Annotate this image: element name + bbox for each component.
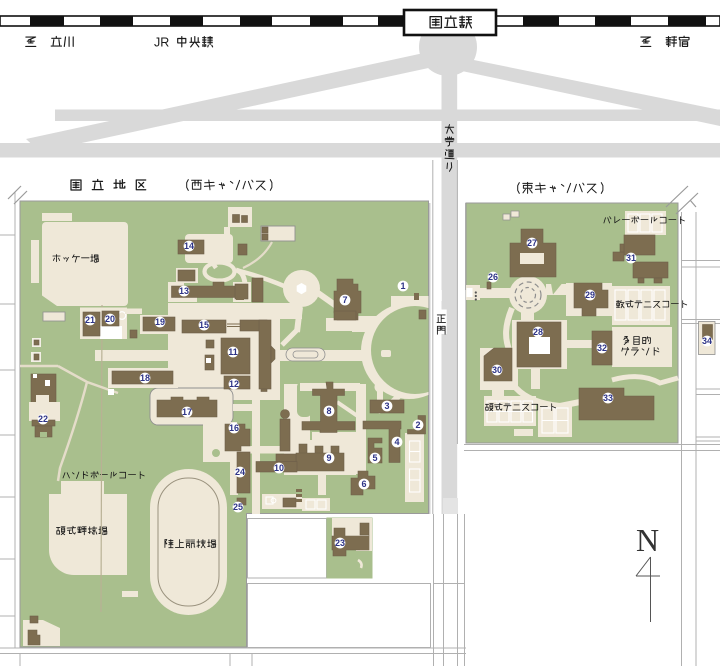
svg-text:17: 17 xyxy=(182,407,192,417)
svg-text:4: 4 xyxy=(394,437,399,447)
svg-text:1: 1 xyxy=(400,281,405,291)
svg-text:26: 26 xyxy=(488,272,498,282)
svg-text:16: 16 xyxy=(229,423,239,433)
svg-text:29: 29 xyxy=(585,290,595,300)
svg-text:31: 31 xyxy=(626,253,636,263)
svg-text:2: 2 xyxy=(415,420,420,430)
svg-text:JR: JR xyxy=(154,36,169,50)
svg-text:32: 32 xyxy=(597,343,607,353)
svg-text:24: 24 xyxy=(235,467,245,477)
svg-text:33: 33 xyxy=(603,393,613,403)
svg-text:18: 18 xyxy=(140,373,150,383)
svg-text:25: 25 xyxy=(233,502,243,512)
svg-text:27: 27 xyxy=(527,238,537,248)
svg-text:13: 13 xyxy=(179,286,189,296)
svg-text:22: 22 xyxy=(38,414,48,424)
svg-text:7: 7 xyxy=(342,295,347,305)
svg-text:8: 8 xyxy=(326,406,331,416)
svg-text:20: 20 xyxy=(105,314,115,324)
svg-text:34: 34 xyxy=(702,336,712,346)
svg-text:23: 23 xyxy=(335,538,345,548)
svg-text:28: 28 xyxy=(533,327,543,337)
svg-text:9: 9 xyxy=(326,453,331,463)
svg-text:11: 11 xyxy=(228,347,238,357)
svg-text:19: 19 xyxy=(155,317,165,327)
svg-text:12: 12 xyxy=(229,379,239,389)
svg-text:3: 3 xyxy=(384,401,389,411)
svg-text:6: 6 xyxy=(361,479,366,489)
svg-text:10: 10 xyxy=(274,463,284,473)
svg-text:21: 21 xyxy=(85,315,95,325)
svg-text:5: 5 xyxy=(372,453,377,463)
svg-text:N: N xyxy=(636,522,659,558)
svg-text:30: 30 xyxy=(492,365,502,375)
svg-text:15: 15 xyxy=(199,320,209,330)
svg-text:14: 14 xyxy=(184,241,194,251)
